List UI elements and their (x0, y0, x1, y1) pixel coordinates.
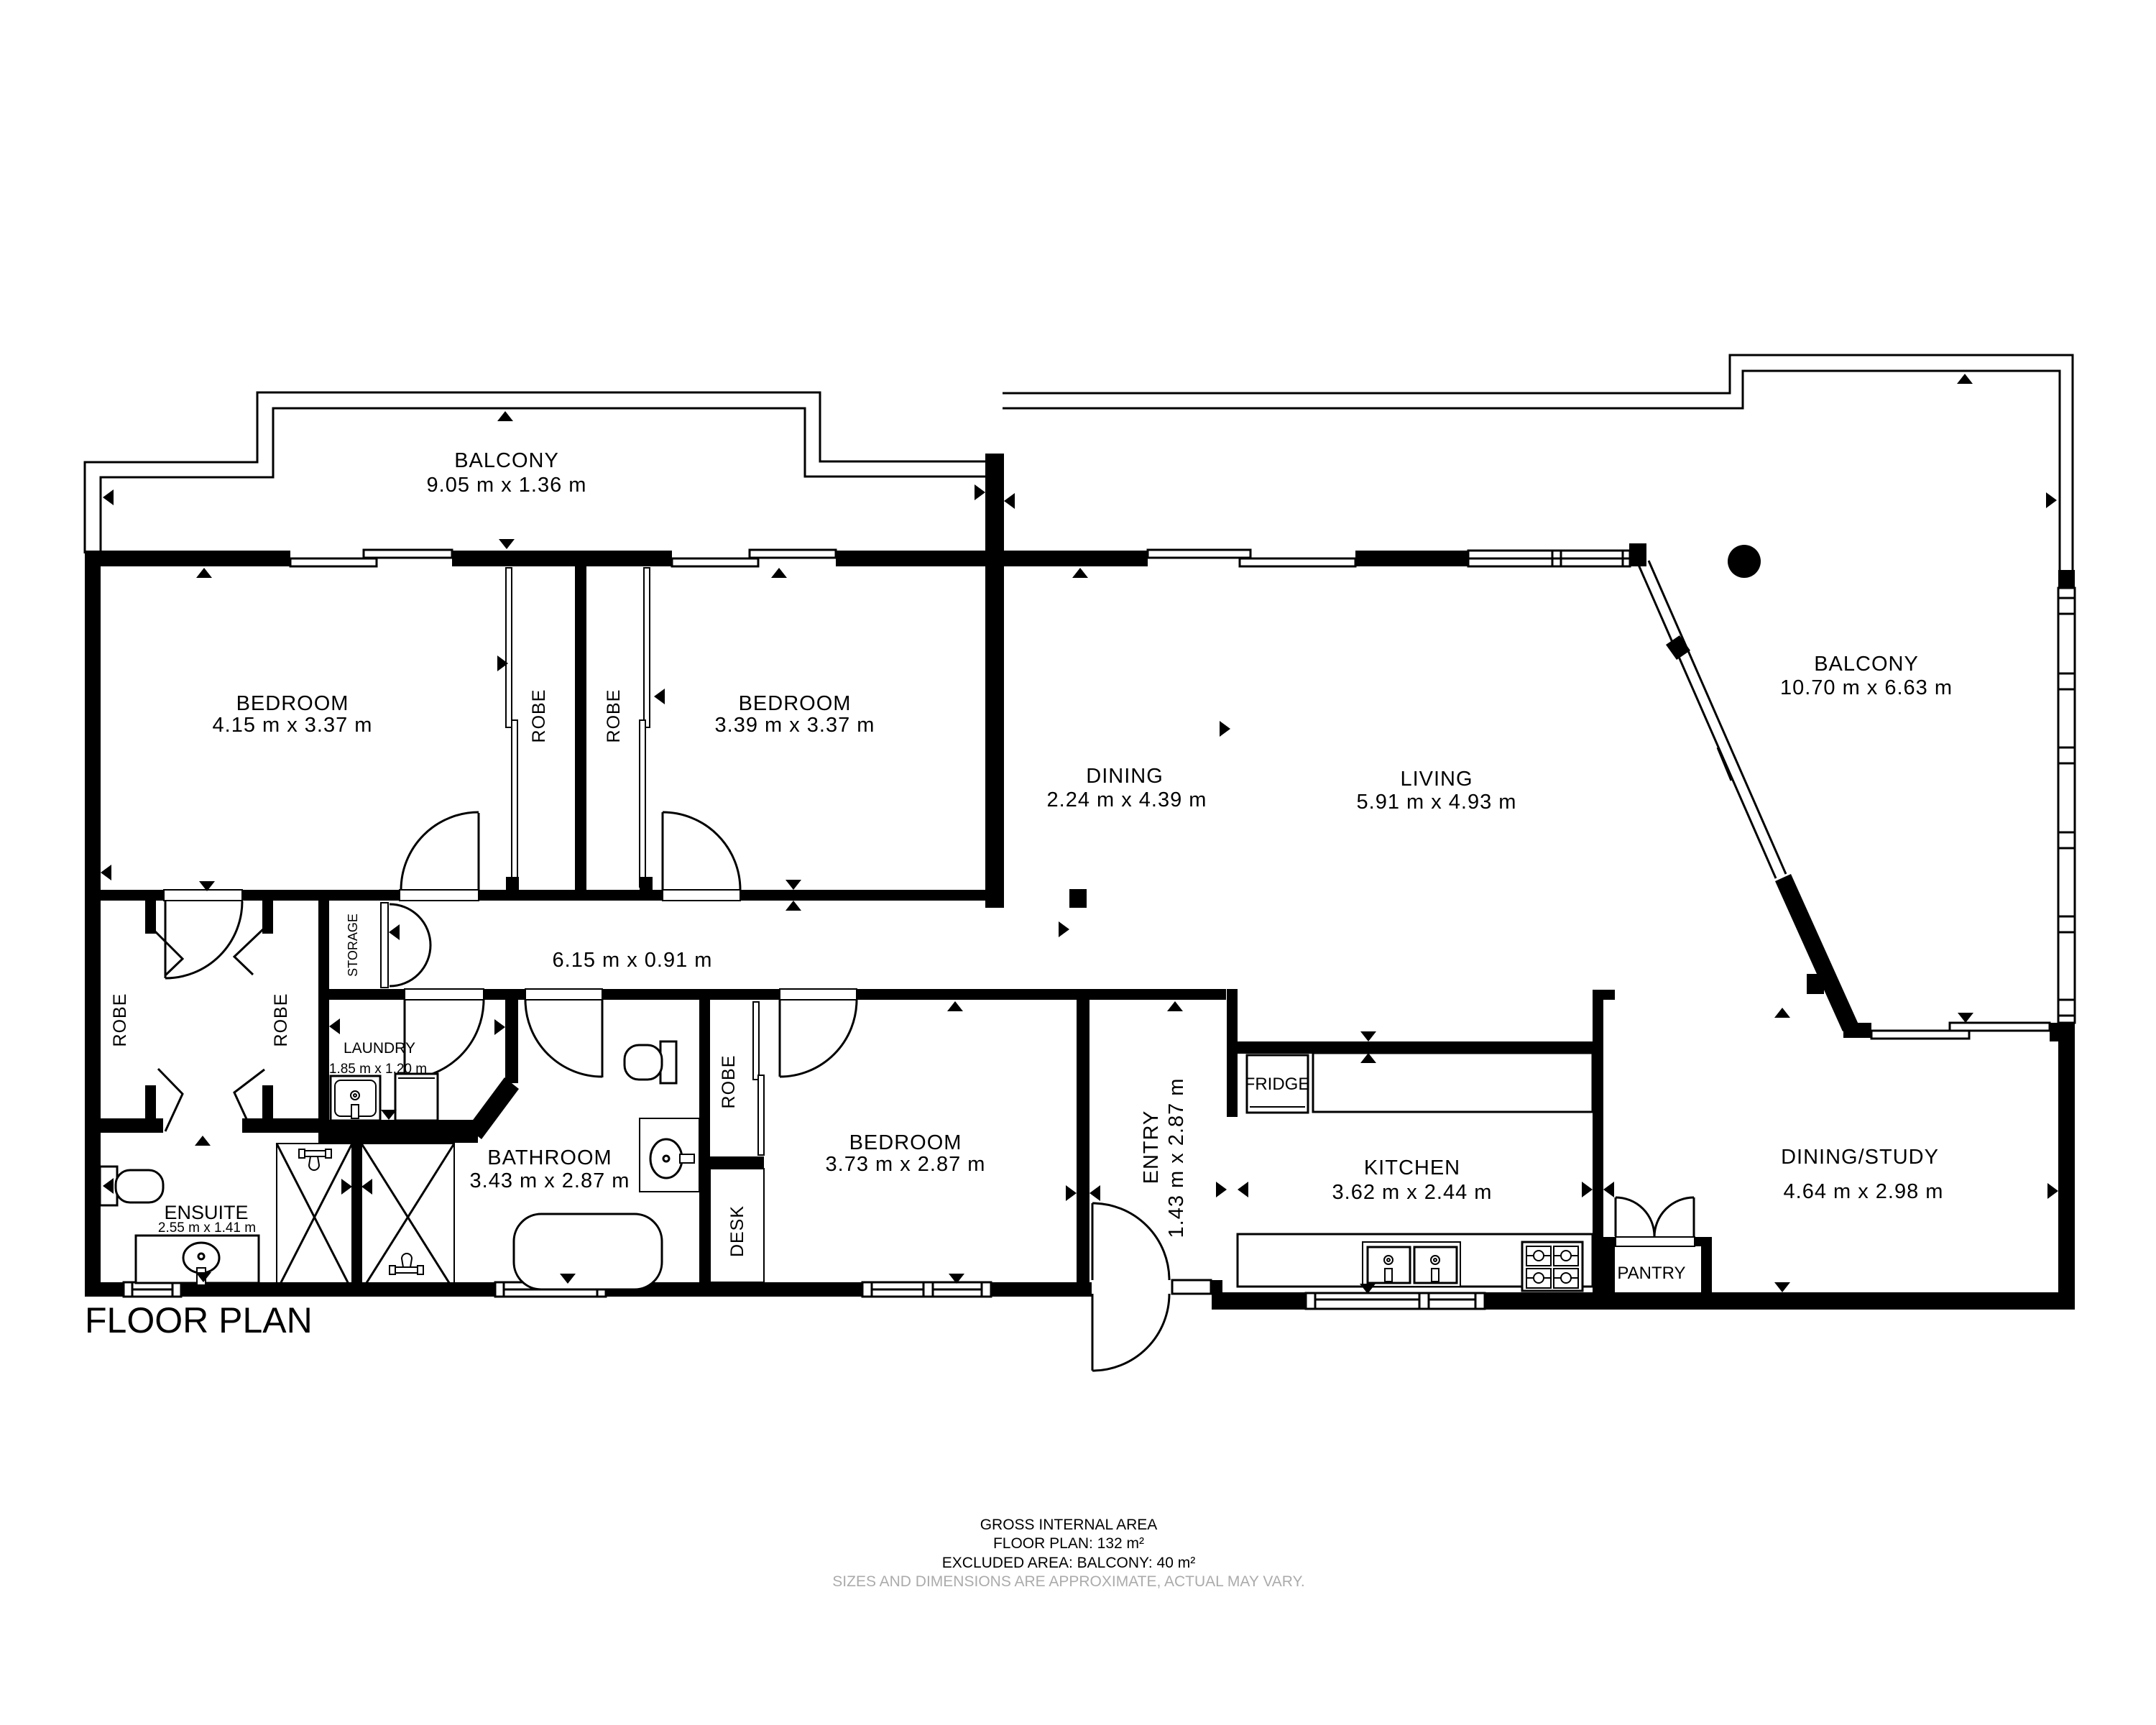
svg-text:BATHROOM: BATHROOM (487, 1146, 612, 1169)
svg-text:3.62 m x 2.44 m: 3.62 m x 2.44 m (1332, 1181, 1493, 1204)
svg-text:KITCHEN: KITCHEN (1364, 1156, 1460, 1179)
svg-text:2.24 m x 4.39 m: 2.24 m x 4.39 m (1047, 788, 1207, 811)
svg-text:EXCLUDED AREA: BALCONY: 40 m²: EXCLUDED AREA: BALCONY: 40 m² (942, 1555, 1195, 1571)
svg-text:FLOOR PLAN: FLOOR PLAN (85, 1300, 313, 1340)
svg-text:SIZES AND DIMENSIONS ARE APPRO: SIZES AND DIMENSIONS ARE APPROXIMATE, AC… (832, 1573, 1304, 1590)
svg-text:1.43 m x 2.87 m: 1.43 m x 2.87 m (1165, 1078, 1188, 1238)
svg-text:DESK: DESK (727, 1205, 747, 1257)
svg-text:9.05 m x 1.36 m: 9.05 m x 1.36 m (427, 474, 587, 497)
svg-text:6.15 m x 0.91 m: 6.15 m x 0.91 m (553, 949, 713, 972)
svg-text:5.91 m x 4.93 m: 5.91 m x 4.93 m (1357, 791, 1517, 814)
svg-text:FRIDGE: FRIDGE (1245, 1075, 1310, 1094)
svg-text:ENTRY: ENTRY (1140, 1110, 1163, 1184)
svg-text:10.70 m x 6.63 m: 10.70 m x 6.63 m (1780, 676, 1953, 699)
svg-text:GROSS INTERNAL AREA: GROSS INTERNAL AREA (980, 1517, 1158, 1533)
svg-text:ROBE: ROBE (604, 689, 624, 743)
svg-text:PANTRY: PANTRY (1617, 1264, 1685, 1283)
svg-text:ROBE: ROBE (529, 689, 549, 743)
svg-text:BEDROOM: BEDROOM (236, 692, 349, 715)
svg-text:4.15 m x 3.37 m: 4.15 m x 3.37 m (213, 714, 373, 737)
svg-text:2.55 m x 1.41 m: 2.55 m x 1.41 m (158, 1220, 256, 1236)
svg-text:BEDROOM: BEDROOM (739, 692, 852, 715)
svg-text:ROBE: ROBE (719, 1055, 739, 1109)
svg-text:LIVING: LIVING (1400, 768, 1473, 791)
svg-text:ROBE: ROBE (271, 993, 291, 1047)
svg-text:1.85 m x 1.20 m: 1.85 m x 1.20 m (329, 1062, 427, 1077)
svg-text:LAUNDRY: LAUNDRY (344, 1040, 415, 1057)
svg-text:ROBE: ROBE (110, 993, 130, 1047)
svg-text:DINING: DINING (1086, 765, 1164, 788)
svg-text:3.39 m x 3.37 m: 3.39 m x 3.37 m (715, 714, 875, 737)
svg-text:BALCONY: BALCONY (1814, 653, 1919, 676)
svg-text:3.73 m x 2.87 m: 3.73 m x 2.87 m (826, 1153, 986, 1176)
svg-text:4.64 m x 2.98 m: 4.64 m x 2.98 m (1784, 1180, 1944, 1203)
svg-text:DINING/STUDY: DINING/STUDY (1781, 1146, 1939, 1169)
svg-text:BALCONY: BALCONY (454, 449, 559, 472)
svg-text:FLOOR PLAN: 132 m²: FLOOR PLAN: 132 m² (993, 1535, 1144, 1552)
svg-text:3.43 m x 2.87 m: 3.43 m x 2.87 m (470, 1169, 630, 1192)
svg-text:STORAGE: STORAGE (346, 914, 360, 977)
svg-text:BEDROOM: BEDROOM (849, 1131, 962, 1154)
